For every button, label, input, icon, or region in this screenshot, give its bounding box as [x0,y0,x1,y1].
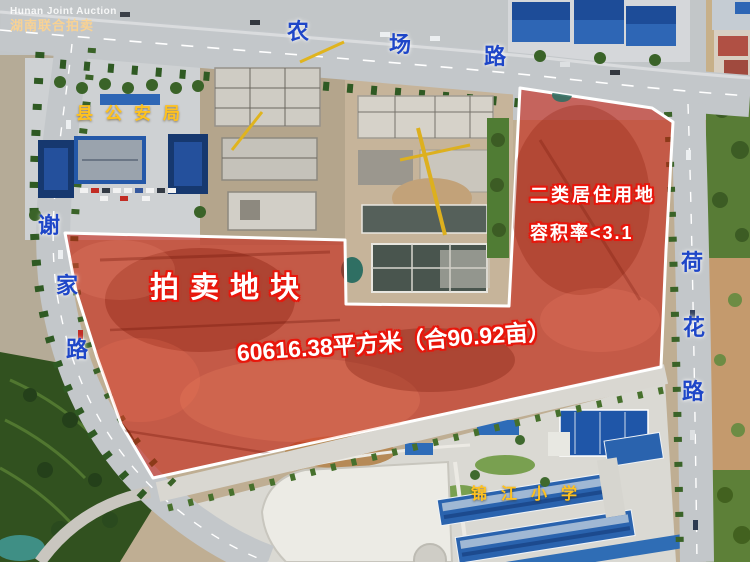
poi-police-label: 县公安局 [76,105,192,122]
parcel-title-label: 拍卖地块 [150,274,310,303]
road-label-xiejia-char: 路 [66,339,88,361]
road-label-nongchang-char: 路 [484,46,506,68]
road-label-xiejia-char: 谢 [38,215,60,237]
road-label-hehua-char: 花 [683,317,705,339]
poi-school-label: 锦江小学 [471,487,591,503]
road-label-xiejia-char: 家 [56,275,78,297]
auction-aerial-map: Hunan Joint Auction 湖南联合拍卖 县公安局 锦江小学 农 场… [0,0,750,562]
watermark-cn: 湖南联合拍卖 [10,19,117,32]
plot-ratio-label: 容积率<3.1 [530,224,634,242]
watermark-en: Hunan Joint Auction [10,7,117,17]
land-use-label: 二类居住用地 [530,186,656,204]
aerial-photo-base [0,0,750,562]
road-label-hehua-char: 路 [682,381,704,403]
road-label-hehua-char: 荷 [681,252,703,274]
road-label-nongchang-char: 场 [389,34,411,56]
watermark: Hunan Joint Auction 湖南联合拍卖 [10,7,117,32]
road-label-nongchang-char: 农 [287,21,309,43]
